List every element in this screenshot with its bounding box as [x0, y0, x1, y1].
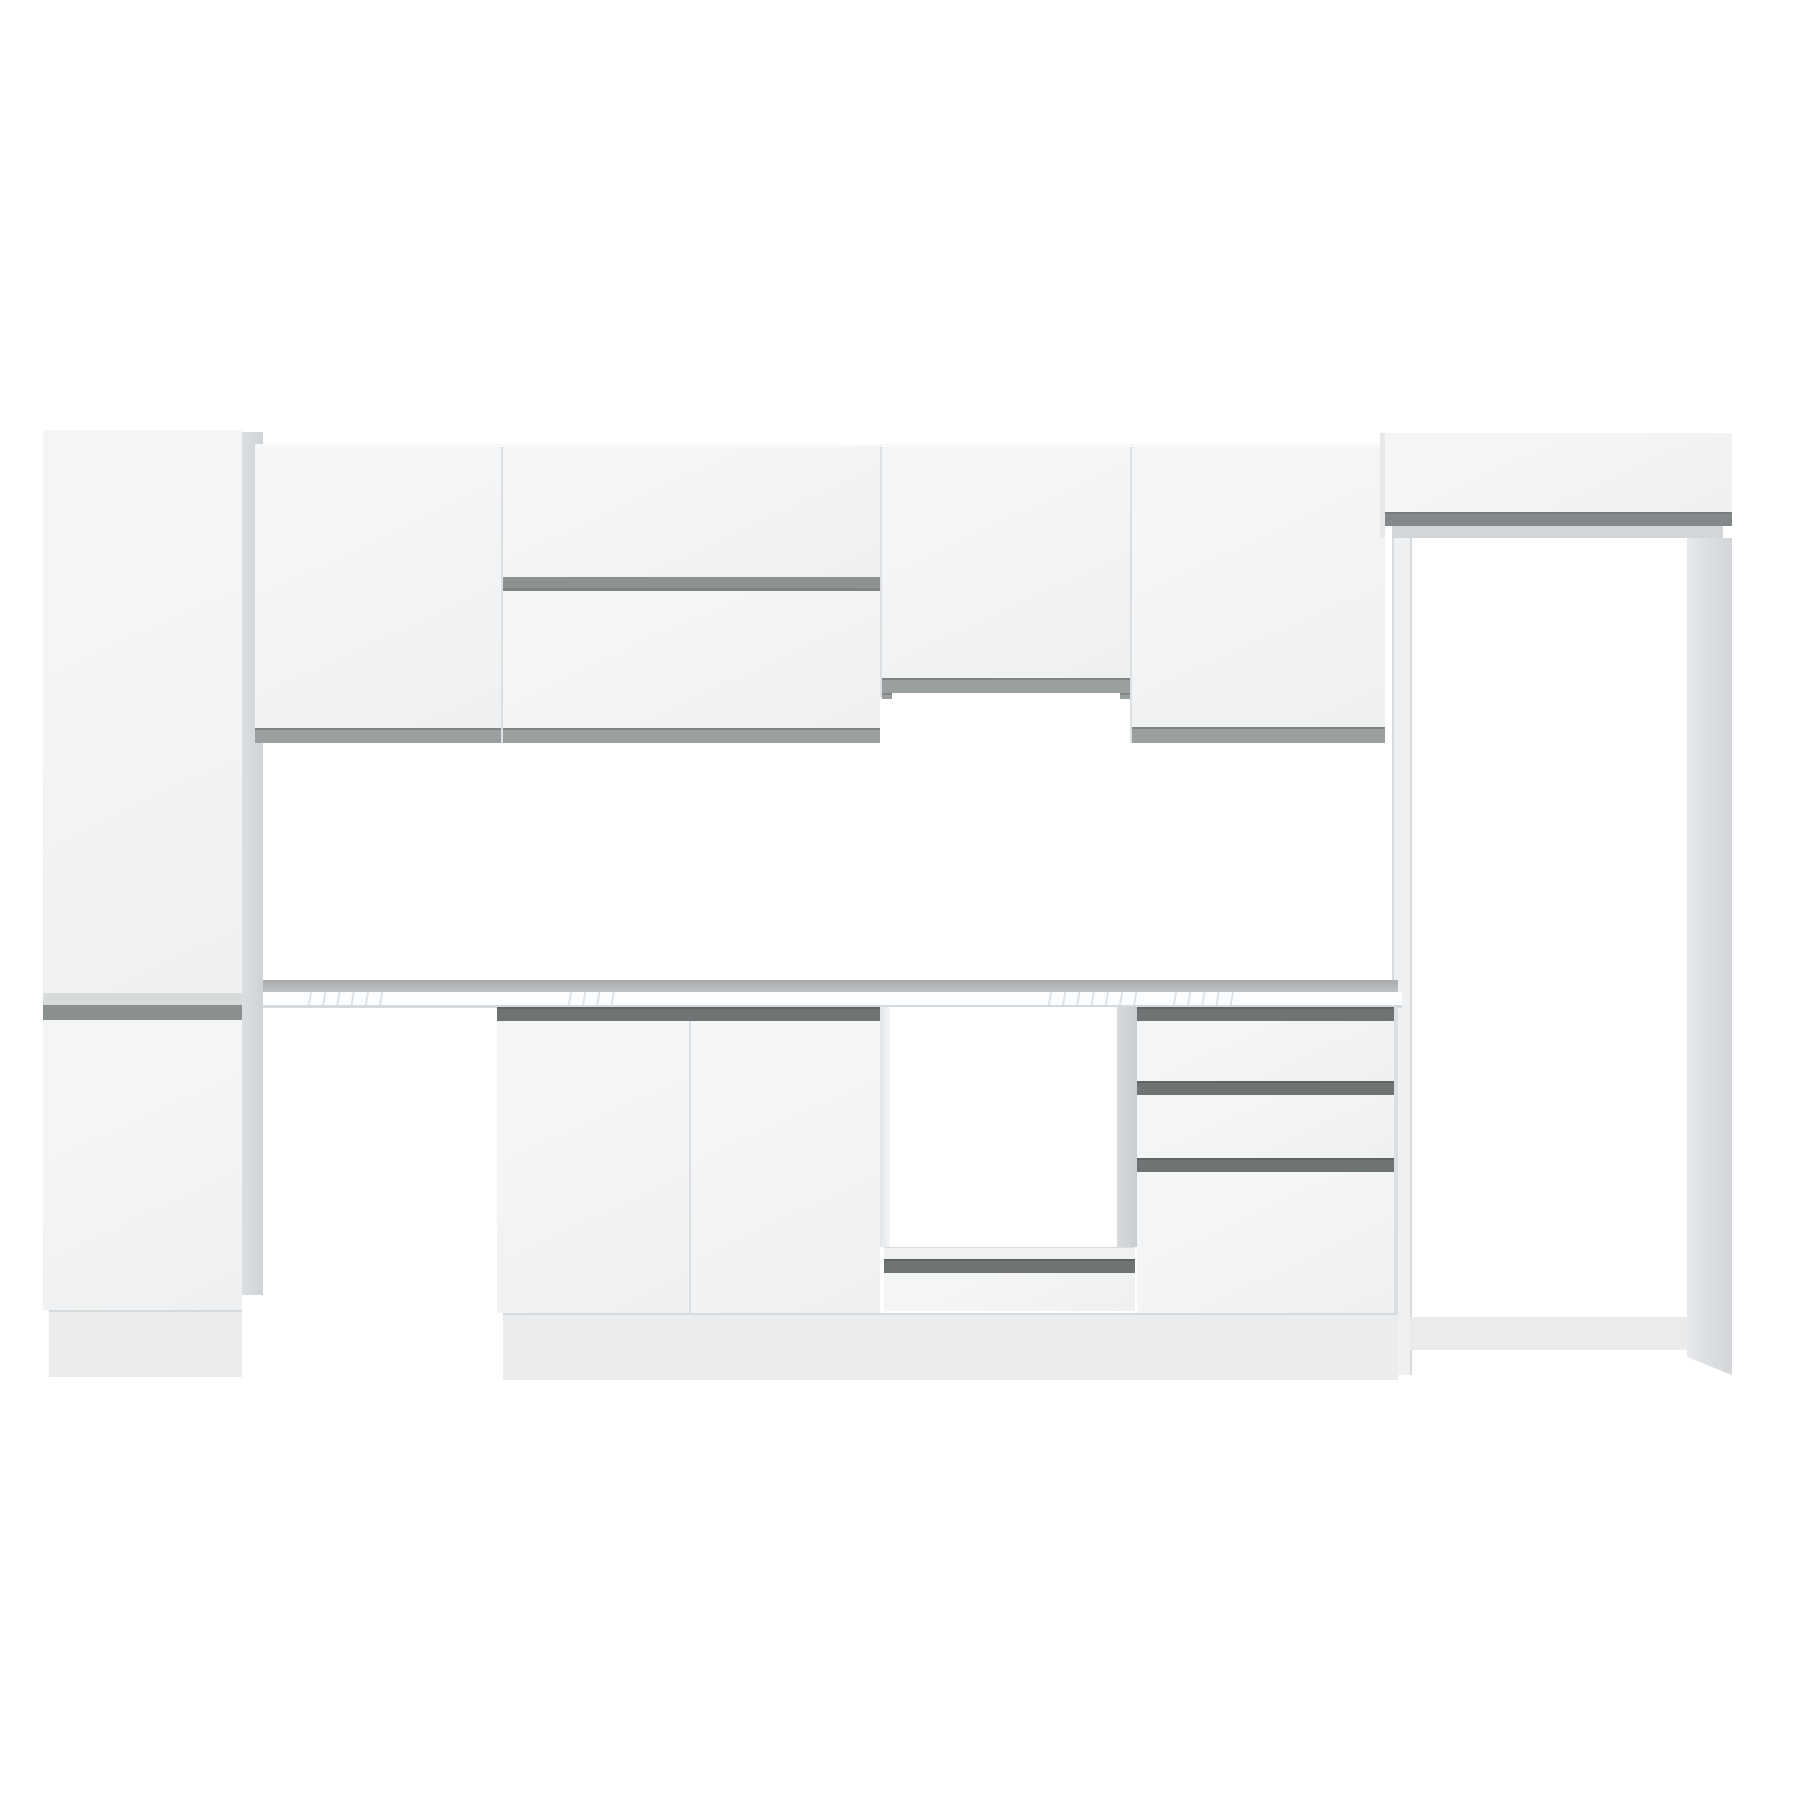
tall-cabinet-upper-door [43, 430, 242, 993]
marble-vein [1168, 992, 1238, 1005]
tall-cabinet-grip-light [43, 993, 242, 1005]
marble-vein [1043, 992, 1138, 1005]
wall-cabinet-b-grip-rail [503, 577, 880, 591]
wall-cabinet-a-bottom-rail [255, 728, 503, 743]
oven-bay-opening [890, 1007, 1117, 1247]
wall-cabinet-d-door [1132, 447, 1385, 727]
drawer-2-grip [1137, 1081, 1398, 1095]
oven-bay-right-wall [1117, 1007, 1137, 1247]
countertop-slab [263, 992, 1402, 1005]
tall-cabinet-lower-door [43, 1020, 242, 1310]
over-fridge-grip-rail [1385, 512, 1732, 526]
fridge-frame-right-stile [1687, 538, 1732, 1375]
kitchen-cabinet-product-image [0, 0, 1800, 1800]
wall-cabinet-c-right-tab [1120, 693, 1130, 699]
wall-cabinet-b-bottom-flap [503, 591, 880, 728]
tall-cabinet-plinth [49, 1310, 242, 1377]
drawer-unit-top-grip [1137, 1007, 1398, 1021]
drawer-unit-right-edge [1394, 1007, 1398, 1313]
countertop-back-edge [263, 980, 1398, 992]
drawer-2-front [1137, 1095, 1398, 1158]
wall-cabinet-b-bottom-rail [503, 728, 880, 743]
base-plinth [503, 1313, 1398, 1380]
wall-cabinet-a-door [255, 447, 501, 728]
over-fridge-bottom-rail [1392, 526, 1723, 538]
wall-cabinet-d-bottom-rail [1132, 727, 1385, 743]
fridge-bay-plinth [1410, 1317, 1687, 1350]
base-doors-top-grip [497, 1007, 884, 1021]
drawer-3-grip [1137, 1158, 1398, 1172]
over-fridge-door [1385, 433, 1732, 512]
oven-bay-drawer-front [884, 1273, 1135, 1311]
oven-bay-drawer-grip [884, 1259, 1135, 1273]
drawer-3-front [1137, 1172, 1398, 1313]
marble-vein [303, 992, 383, 1005]
wall-cabinet-c-bottom-rail [882, 678, 1130, 693]
wall-cabinet-c-left-tab [882, 693, 892, 699]
marble-vein [563, 992, 623, 1005]
oven-bay-left-wall [880, 1007, 890, 1247]
wall-cabinet-b-top-flap [503, 447, 880, 577]
tall-cabinet-grip-dark [43, 1005, 242, 1020]
base-cabinet-right-door [691, 1021, 880, 1313]
wall-cabinet-c-door [882, 447, 1130, 678]
base-cabinet-left-door [497, 1021, 689, 1313]
drawer-1-front [1137, 1021, 1398, 1081]
